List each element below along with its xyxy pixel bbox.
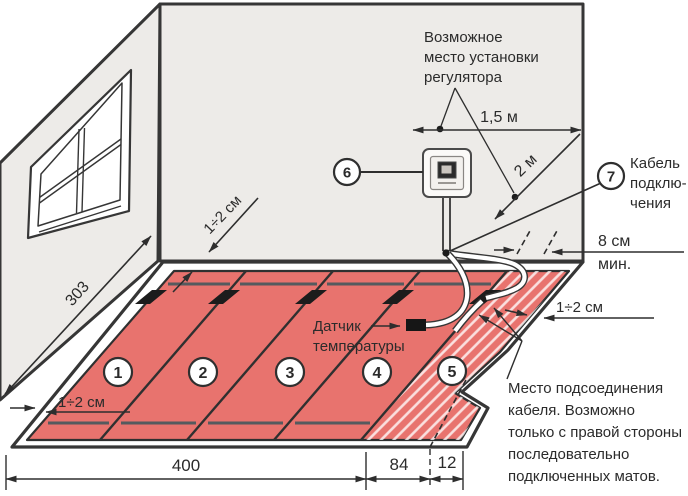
svg-text:только с правой стороны: только с правой стороны [508,424,682,441]
svg-text:1÷2 см: 1÷2 см [556,299,603,316]
diagram-canvas: 6 7 Кабель подклю- чения Возможное место… [0,0,688,496]
svg-text:1: 1 [114,365,123,382]
mat-number-2: 2 [189,358,217,386]
svg-text:2: 2 [199,365,208,382]
svg-text:кабеля. Возможно: кабеля. Возможно [508,402,635,419]
mat-number-1: 1 [104,358,132,386]
callout-6-number: 6 [343,165,351,182]
svg-text:Место подсоединения: Место подсоединения [508,380,663,397]
bottom-dimensions: 400 84 12 [6,449,463,490]
svg-text:мин.: мин. [598,256,631,273]
svg-text:температуры: температуры [313,338,405,355]
connection-cable-label: Кабель подклю- чения [630,155,687,212]
svg-text:подклю-: подклю- [630,175,687,192]
dimension-12: 12 [438,453,457,472]
svg-text:5: 5 [448,364,457,381]
svg-text:4: 4 [373,365,382,382]
svg-text:3: 3 [286,365,295,382]
svg-text:подключенных матов.: подключенных матов. [508,468,660,485]
thermostat [423,149,471,197]
cable-junction-dot [442,249,449,256]
mat-number-4: 4 [363,358,391,386]
mat-number-5: 5 [438,357,466,385]
svg-text:8 см: 8 см [598,233,630,250]
svg-text:1,5 м: 1,5 м [480,109,518,126]
temperature-sensor [406,319,426,331]
callout-7-number: 7 [607,169,615,186]
svg-text:последовательно: последовательно [508,446,629,463]
dimension-84: 84 [390,455,409,474]
svg-text:1÷2 см: 1÷2 см [58,394,105,411]
svg-text:Кабель: Кабель [630,155,680,172]
mat-number-3: 3 [276,358,304,386]
regulator-position-dot-1 [437,126,444,133]
svg-text:Датчик: Датчик [313,318,361,335]
svg-text:место установки: место установки [424,49,539,66]
heated-floor-installation-diagram: 6 7 Кабель подклю- чения Возможное место… [0,0,688,496]
dimension-400: 400 [172,456,200,475]
svg-text:чения: чения [630,195,671,212]
svg-text:Возможное: Возможное [424,29,503,46]
svg-text:регулятора: регулятора [424,69,503,86]
